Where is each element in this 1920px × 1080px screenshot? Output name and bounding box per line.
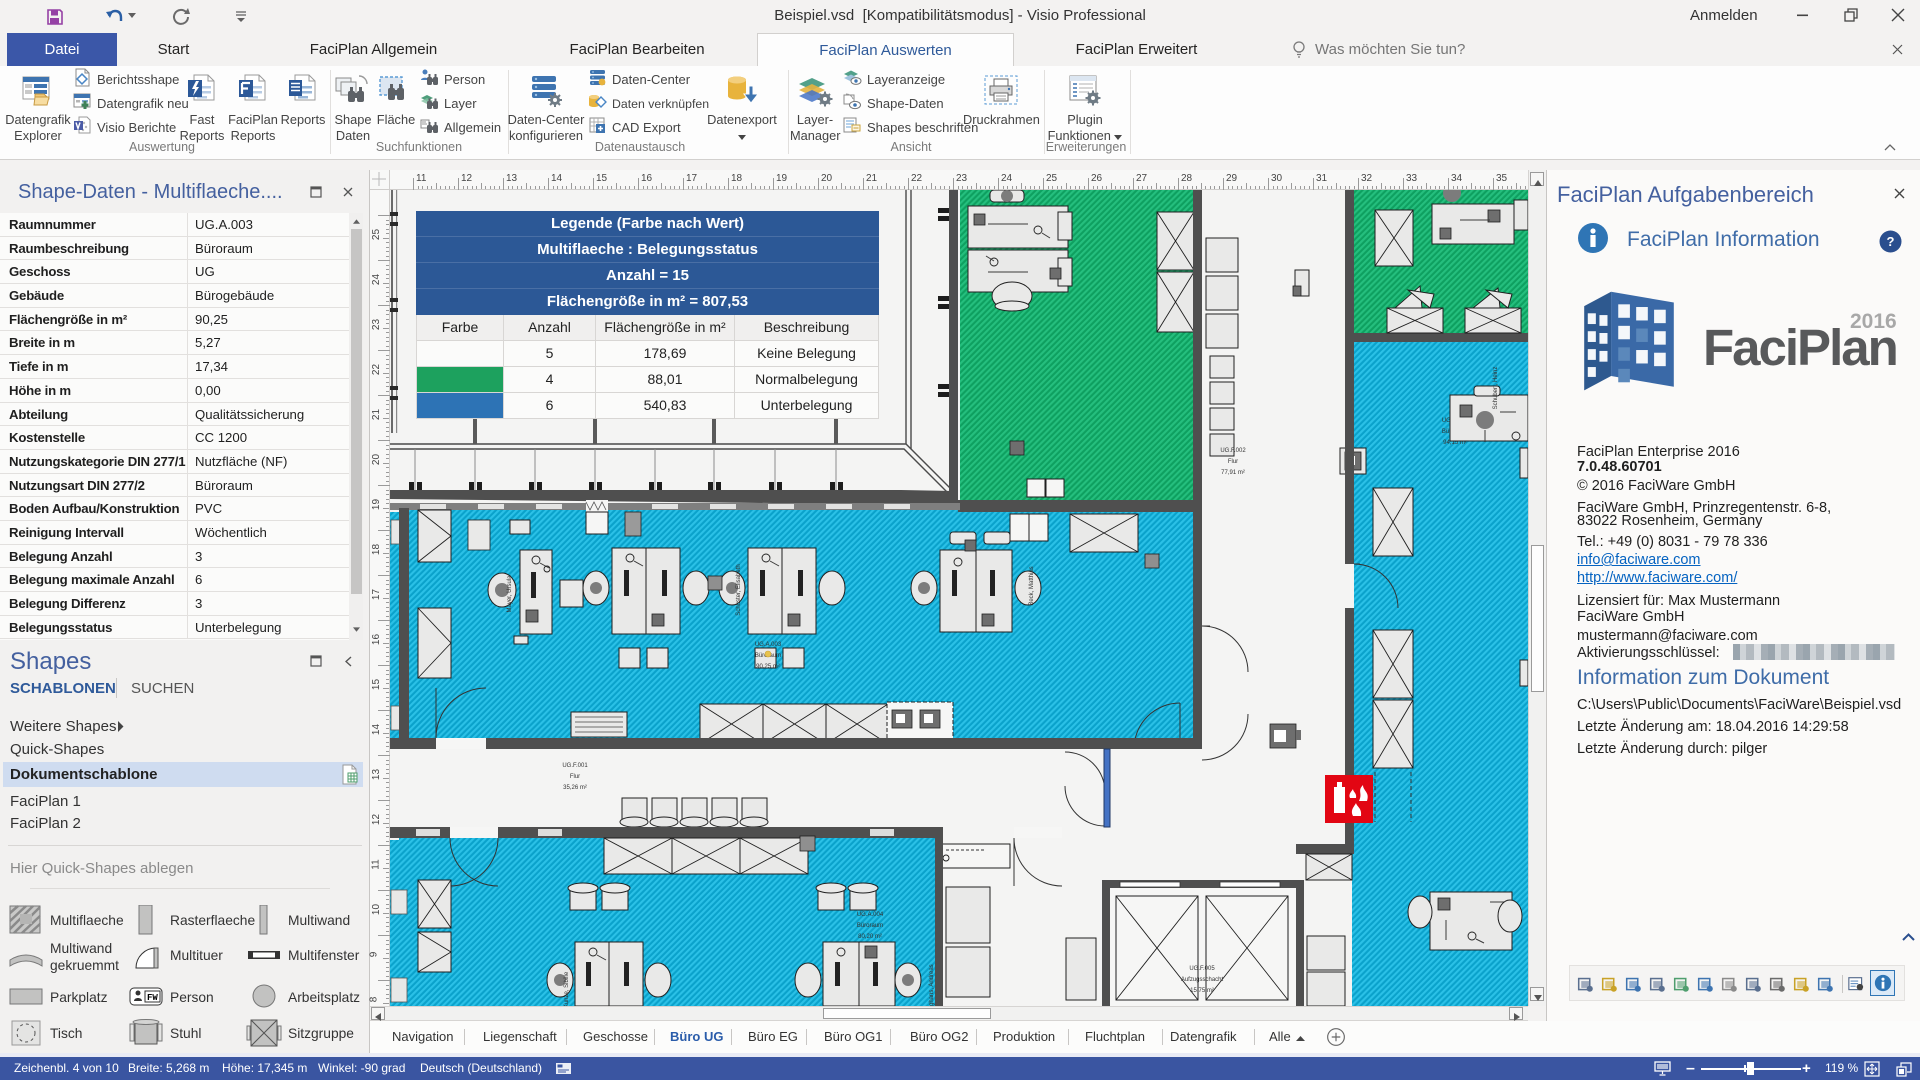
svg-text:80,20 m²: 80,20 m² <box>858 934 882 940</box>
svg-text:Junghans, Andreas: Junghans, Andreas <box>929 964 935 1006</box>
svg-text:Kunze, Sibille: Kunze, Sibille <box>564 971 570 1006</box>
svg-text:35,26 m²: 35,26 m² <box>563 785 587 791</box>
svg-text:90,25 m²: 90,25 m² <box>756 664 780 670</box>
svg-text:UG.F.002: UG.F.002 <box>1220 448 1246 454</box>
svg-text:Flur: Flur <box>1228 459 1238 465</box>
svg-text:Aufzugsschacht: Aufzugsschacht <box>1181 977 1224 983</box>
svg-text:77,91 m²: 77,91 m² <box>1221 470 1245 476</box>
svg-text:?: ? <box>1887 234 1895 249</box>
svg-text:UG.A.003: UG.A.003 <box>755 642 782 648</box>
svg-text:Büroraum: Büroraum <box>857 923 883 929</box>
svg-text:Beck, Matthias: Beck, Matthias <box>1029 566 1035 605</box>
svg-text:UG.F.005: UG.F.005 <box>1189 966 1215 972</box>
svg-text:Schuster, Elisabeth: Schuster, Elisabeth <box>736 564 742 615</box>
svg-text:15,75 m²: 15,75 m² <box>1190 988 1214 994</box>
svg-text:UG.A.004: UG.A.004 <box>857 912 884 918</box>
svg-text:Schubert, Heinz: Schubert, Heinz <box>1493 367 1499 410</box>
svg-text:Flur: Flur <box>570 774 580 780</box>
svg-text:Mayer, Ursula: Mayer, Ursula <box>507 575 513 613</box>
svg-text:UG.F.001: UG.F.001 <box>562 763 588 769</box>
